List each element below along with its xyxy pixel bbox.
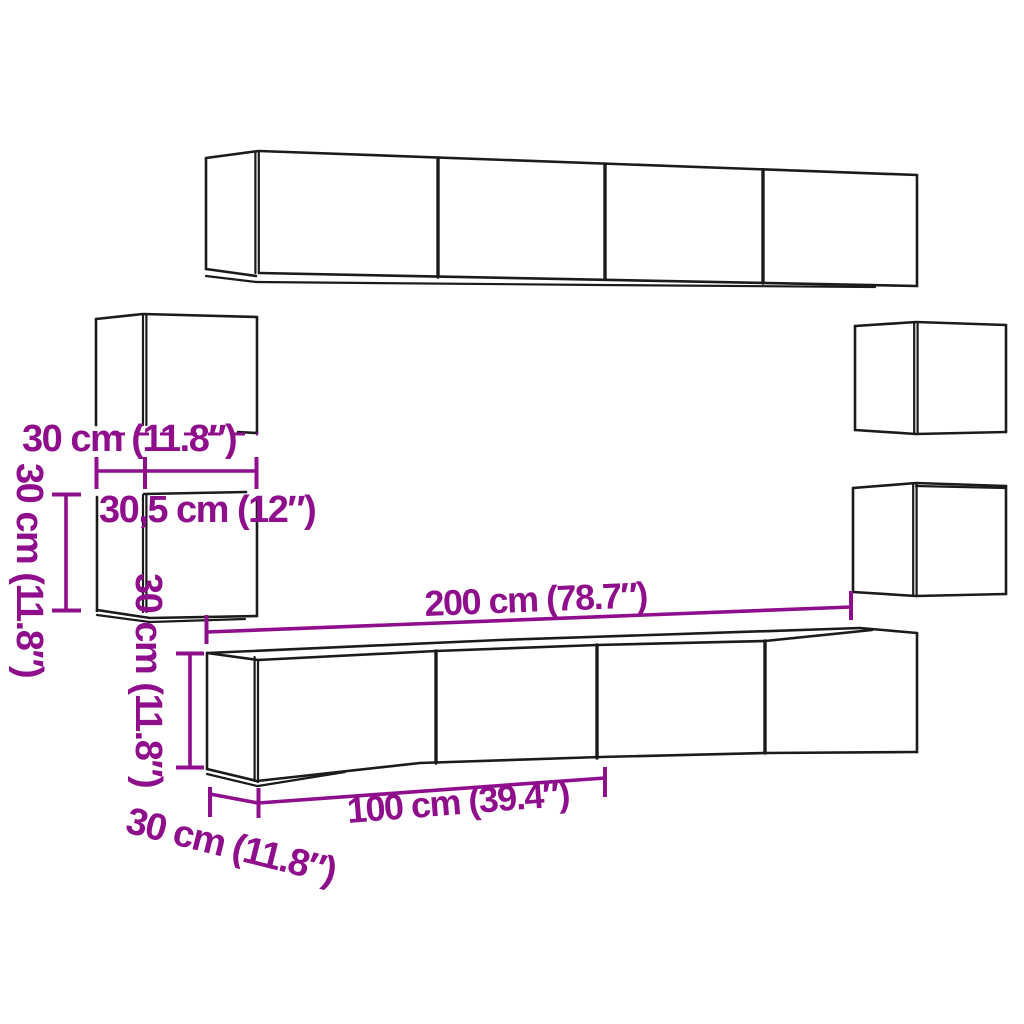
lower-left-cabinet-height-label: 30 cm (11.8″) (8, 463, 50, 677)
dimension-annotations: 30 cm (11.8″) 30,5 cm (12″) 30 cm (11.8″… (8, 418, 851, 893)
right-lower-cabinet (853, 483, 1006, 596)
dim-lower-left-cabinet-height: 30 cm (11.8″) (8, 463, 81, 677)
tv-cabinet-width-label: 100 cm (39.4″) (345, 773, 570, 831)
diagram-canvas: 30 cm (11.8″) 30,5 cm (12″) 30 cm (11.8″… (0, 0, 1024, 1024)
dim-depth-and-cabinet-width: 100 cm (39.4″) 30 cm (11.8″) (122, 767, 605, 893)
dim-left-cabinet-width: 30,5 cm (12″) (96, 457, 315, 531)
right-upper-cabinet (855, 322, 1006, 434)
upper-left-cabinet-height-label: 30 cm (11.8″) (22, 418, 236, 460)
cabinet-depth-label: 30 cm (11.8″) (122, 800, 340, 893)
product-dimension-diagram: 30 cm (11.8″) 30,5 cm (12″) 30 cm (11.8″… (0, 0, 1024, 1024)
bottom-wall-cabinet (207, 628, 917, 786)
depth-segment (210, 794, 258, 803)
dim-tv-cabinet-height: 30 cm (11.8″) (127, 573, 204, 787)
left-cabinet-width-label: 30,5 cm (12″) (99, 489, 315, 531)
dim-upper-left-cabinet-height: 30 cm (11.8″) (22, 418, 258, 460)
dim-total-width: 200 cm (78.7″) (207, 574, 852, 644)
cabinets (96, 151, 1006, 786)
tv-cabinet-height-label: 30 cm (11.8″) (127, 573, 169, 787)
upper-left-cabinet (96, 314, 257, 434)
top-wall-cabinet (206, 151, 917, 287)
